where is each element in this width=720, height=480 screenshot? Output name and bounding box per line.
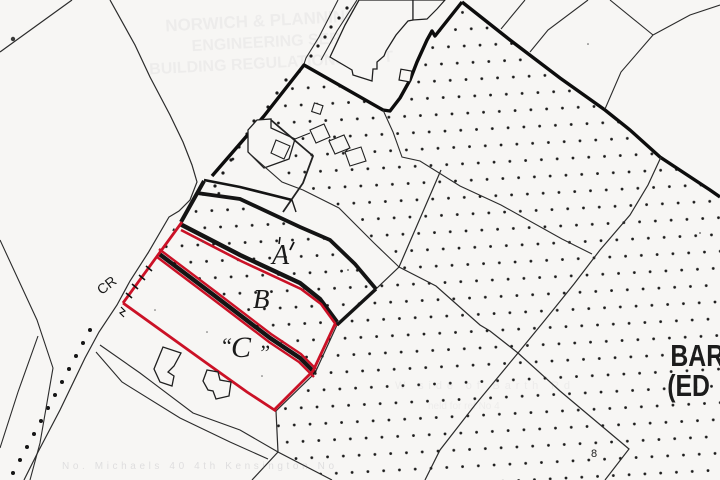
svg-text:C: C [231, 331, 252, 364]
svg-text:(ED: (ED [667, 368, 710, 402]
svg-text:“: “ [220, 333, 232, 358]
svg-text:A: A [270, 240, 290, 271]
svg-text:No. Michaels 40 4th Kensingto: No. Michaels 40 4th Kensington No [62, 461, 334, 472]
svg-text:”: ” [258, 340, 270, 365]
svg-text:8: 8 [591, 448, 597, 460]
svg-text:held for ref No 4: held for ref No 4 [428, 401, 500, 412]
svg-text:B: B [253, 284, 270, 314]
